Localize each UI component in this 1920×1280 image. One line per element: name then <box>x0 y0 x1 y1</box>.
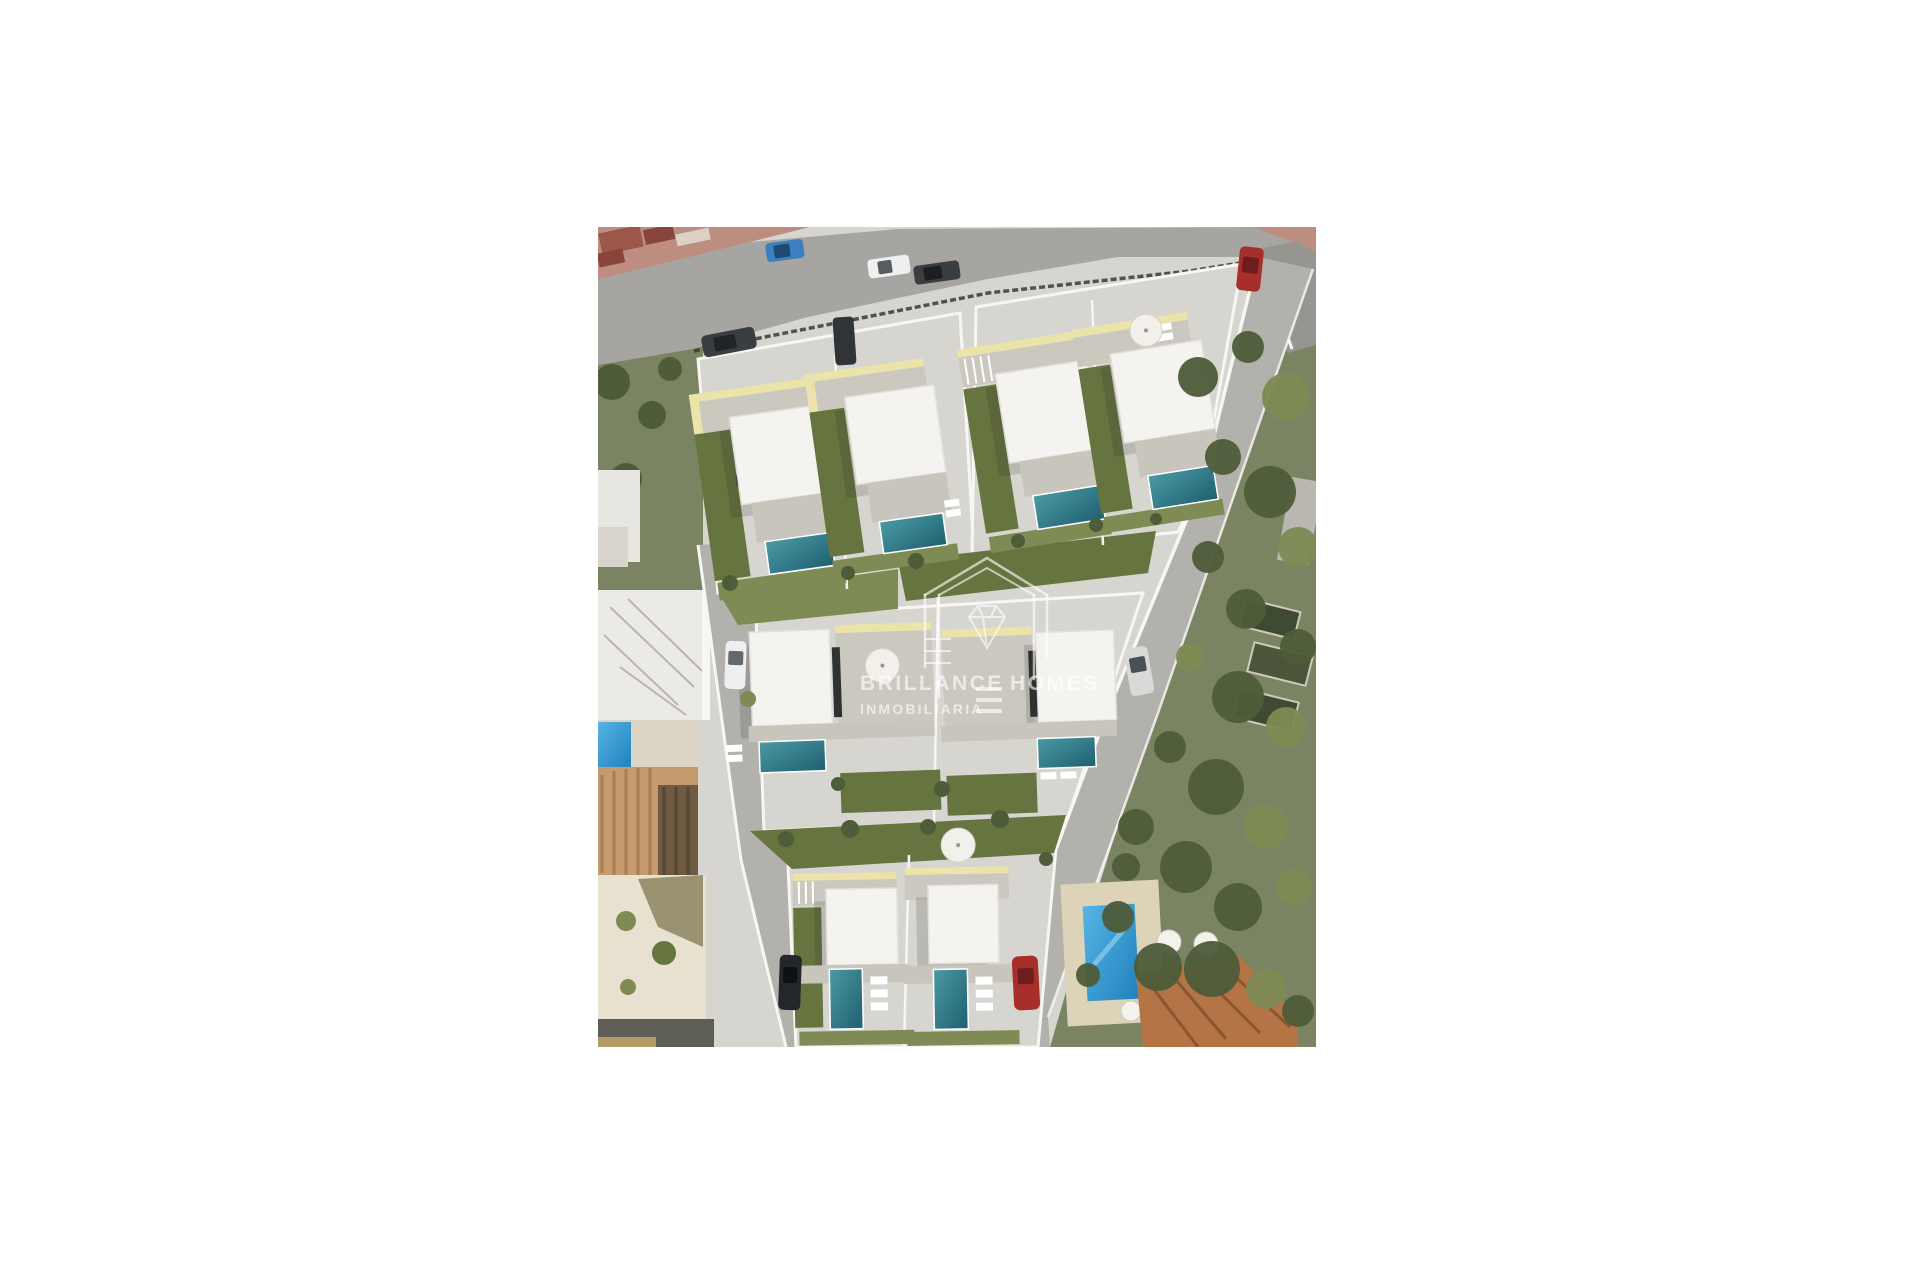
neighbor-pool <box>598 722 631 768</box>
sun-lounger <box>726 755 742 763</box>
white-roof <box>845 385 946 485</box>
screenshot-canvas: BRILLANCE HOMES INMOBILIARIA <box>0 0 1920 1280</box>
sun-lounger <box>976 989 993 997</box>
sun-lounger <box>726 745 742 753</box>
sun-lounger <box>870 976 887 984</box>
courtyard <box>598 875 706 1023</box>
watermark-brand-first: BRILLANCE <box>860 672 1004 695</box>
car-red-topright <box>1236 246 1264 292</box>
tan-roof-house <box>598 767 698 877</box>
car-red-bottom-right <box>1012 955 1041 1010</box>
aerial-render-photo: BRILLANCE HOMES INMOBILIARIA <box>598 227 1316 1047</box>
watermark-brand-second: HOMES <box>1010 672 1100 695</box>
tree <box>658 357 682 381</box>
apartment-building <box>598 590 710 720</box>
lawn <box>946 773 1037 816</box>
small-roof <box>598 527 628 567</box>
bottom-left-strip <box>598 1037 656 1047</box>
pool <box>1037 737 1096 769</box>
pool <box>933 969 968 1030</box>
shrub <box>616 911 636 931</box>
sun-lounger <box>1060 771 1076 779</box>
tree <box>638 401 666 429</box>
pool <box>829 969 863 1030</box>
aerial-render-scene: BRILLANCE HOMES INMOBILIARIA <box>598 227 1316 1047</box>
car-black-bottom-left <box>778 955 802 1011</box>
watermark-subtitle: INMOBILIARIA <box>860 701 984 717</box>
lawn <box>799 1030 914 1046</box>
sun-lounger <box>1040 772 1056 780</box>
neighbor-patio-pool <box>598 720 698 770</box>
van-dark <box>832 316 856 365</box>
lawn <box>840 770 941 813</box>
white-roof <box>928 884 999 963</box>
shrub <box>652 941 676 965</box>
car-white-left-street <box>724 641 747 690</box>
parasol <box>1121 1001 1141 1021</box>
lawn <box>907 1030 1019 1046</box>
sun-lounger <box>975 976 992 984</box>
shrub <box>620 979 636 995</box>
sun-lounger <box>871 1002 888 1010</box>
sun-lounger <box>871 989 888 997</box>
white-roof <box>749 629 832 726</box>
sun-lounger <box>976 1002 993 1010</box>
white-roof <box>826 888 898 965</box>
pool <box>759 740 826 773</box>
